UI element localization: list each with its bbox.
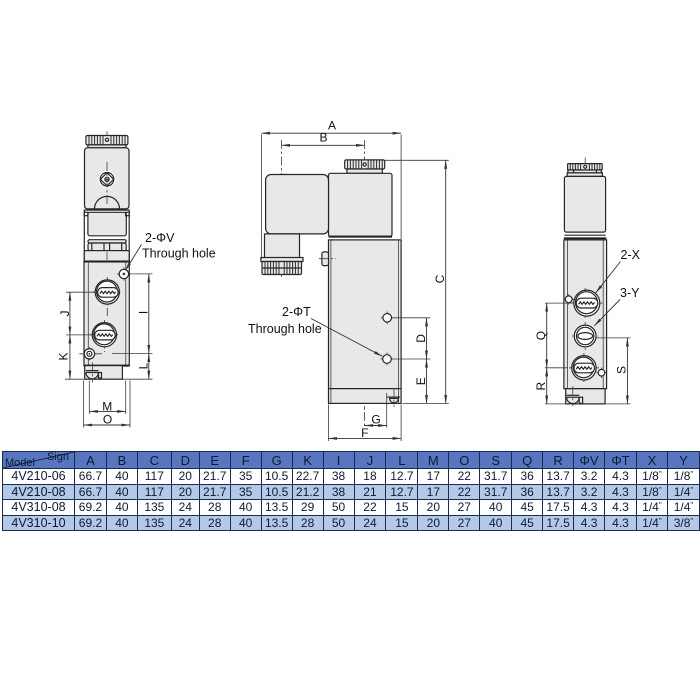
svg-text:D: D (414, 334, 428, 343)
svg-text:Q: Q (534, 331, 548, 340)
svg-text:J: J (58, 311, 72, 317)
svg-text:Through hole: Through hole (142, 247, 216, 261)
svg-text:M: M (102, 399, 112, 413)
svg-text:3-Y: 3-Y (620, 286, 640, 300)
svg-text:2-ΦT: 2-ΦT (282, 305, 311, 319)
svg-text:A: A (328, 119, 336, 133)
svg-text:F: F (361, 426, 368, 440)
svg-text:R: R (534, 381, 548, 390)
svg-text:B: B (319, 131, 327, 145)
svg-text:2-X: 2-X (621, 248, 641, 262)
svg-text:K: K (57, 352, 71, 360)
svg-text:Through hole: Through hole (248, 322, 322, 336)
svg-text:G: G (371, 412, 380, 426)
svg-text:O: O (103, 412, 112, 426)
svg-text:E: E (414, 377, 428, 385)
svg-text:S: S (615, 366, 629, 374)
svg-text:I: I (136, 311, 150, 314)
svg-text:C: C (433, 274, 447, 283)
svg-text:L: L (136, 362, 150, 369)
svg-text:2-ΦV: 2-ΦV (145, 231, 175, 245)
